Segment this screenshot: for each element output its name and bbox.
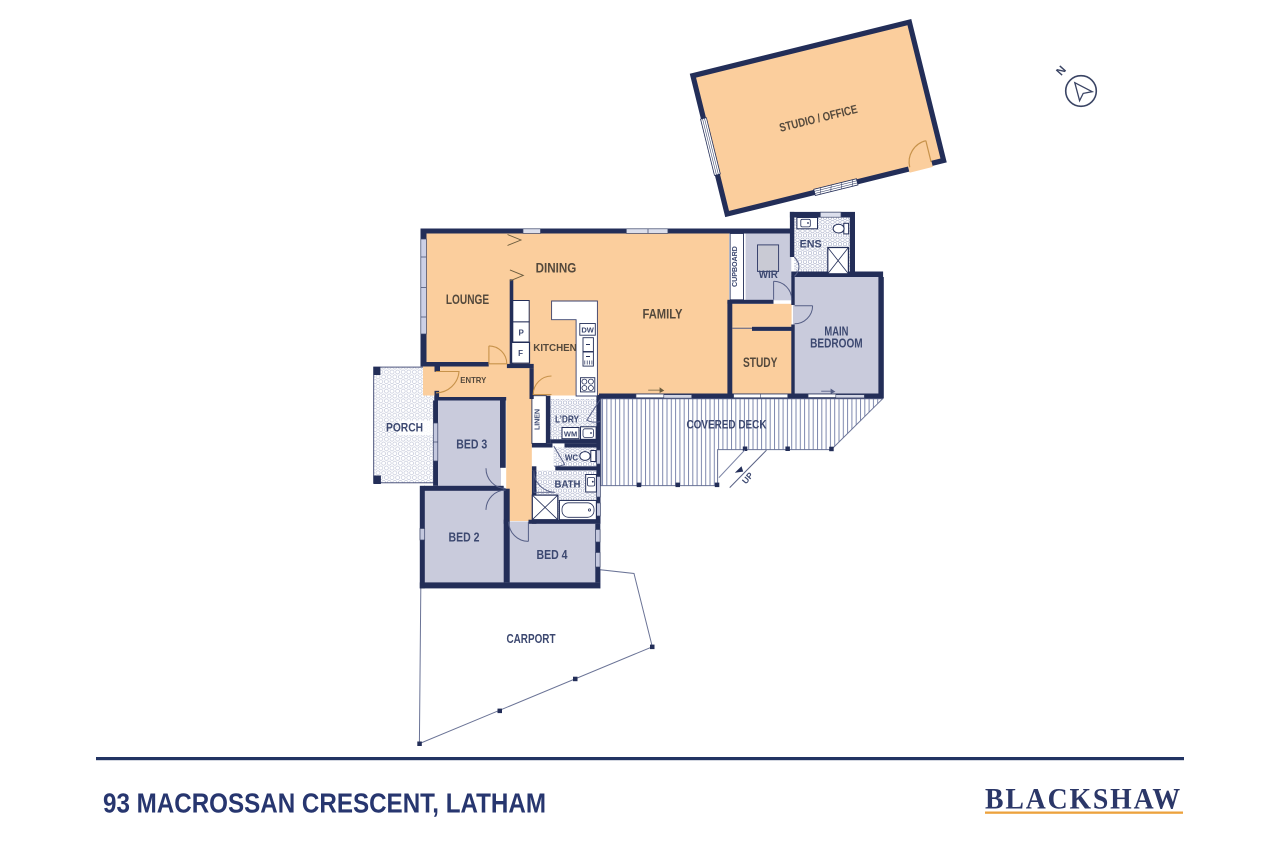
svg-text:WC: WC [565,454,579,463]
svg-text:BEDROOM: BEDROOM [810,336,863,350]
svg-text:CARPORT: CARPORT [507,632,556,646]
svg-text:CUPBOARD: CUPBOARD [730,246,739,287]
svg-text:PORCH: PORCH [386,422,423,434]
svg-text:BATH: BATH [555,480,581,491]
svg-text:F: F [518,349,523,358]
svg-text:WIR: WIR [759,269,778,281]
svg-text:BLACKSHAW: BLACKSHAW [985,783,1182,816]
svg-text:FAMILY: FAMILY [643,306,683,321]
svg-text:L’DRY: L’DRY [555,415,579,426]
svg-text:LINEN: LINEN [532,409,541,430]
svg-text:DW: DW [581,326,594,335]
svg-text:BED 4: BED 4 [537,548,568,562]
svg-text:COVERED DECK: COVERED DECK [687,417,767,431]
svg-text:KITCHEN: KITCHEN [533,342,577,354]
svg-text:BED 2: BED 2 [449,530,480,544]
svg-text:P: P [519,328,525,337]
svg-text:ENS: ENS [800,239,822,251]
svg-text:STUDY: STUDY [743,355,778,370]
svg-text:93 MACROSSAN CRESCENT, LATHAM: 93 MACROSSAN CRESCENT, LATHAM [103,788,546,819]
svg-text:BED 3: BED 3 [456,437,487,451]
svg-text:WM: WM [564,429,577,438]
svg-text:ENTRY: ENTRY [460,375,486,385]
svg-text:DINING: DINING [536,259,577,275]
svg-text:LOUNGE: LOUNGE [446,291,489,307]
